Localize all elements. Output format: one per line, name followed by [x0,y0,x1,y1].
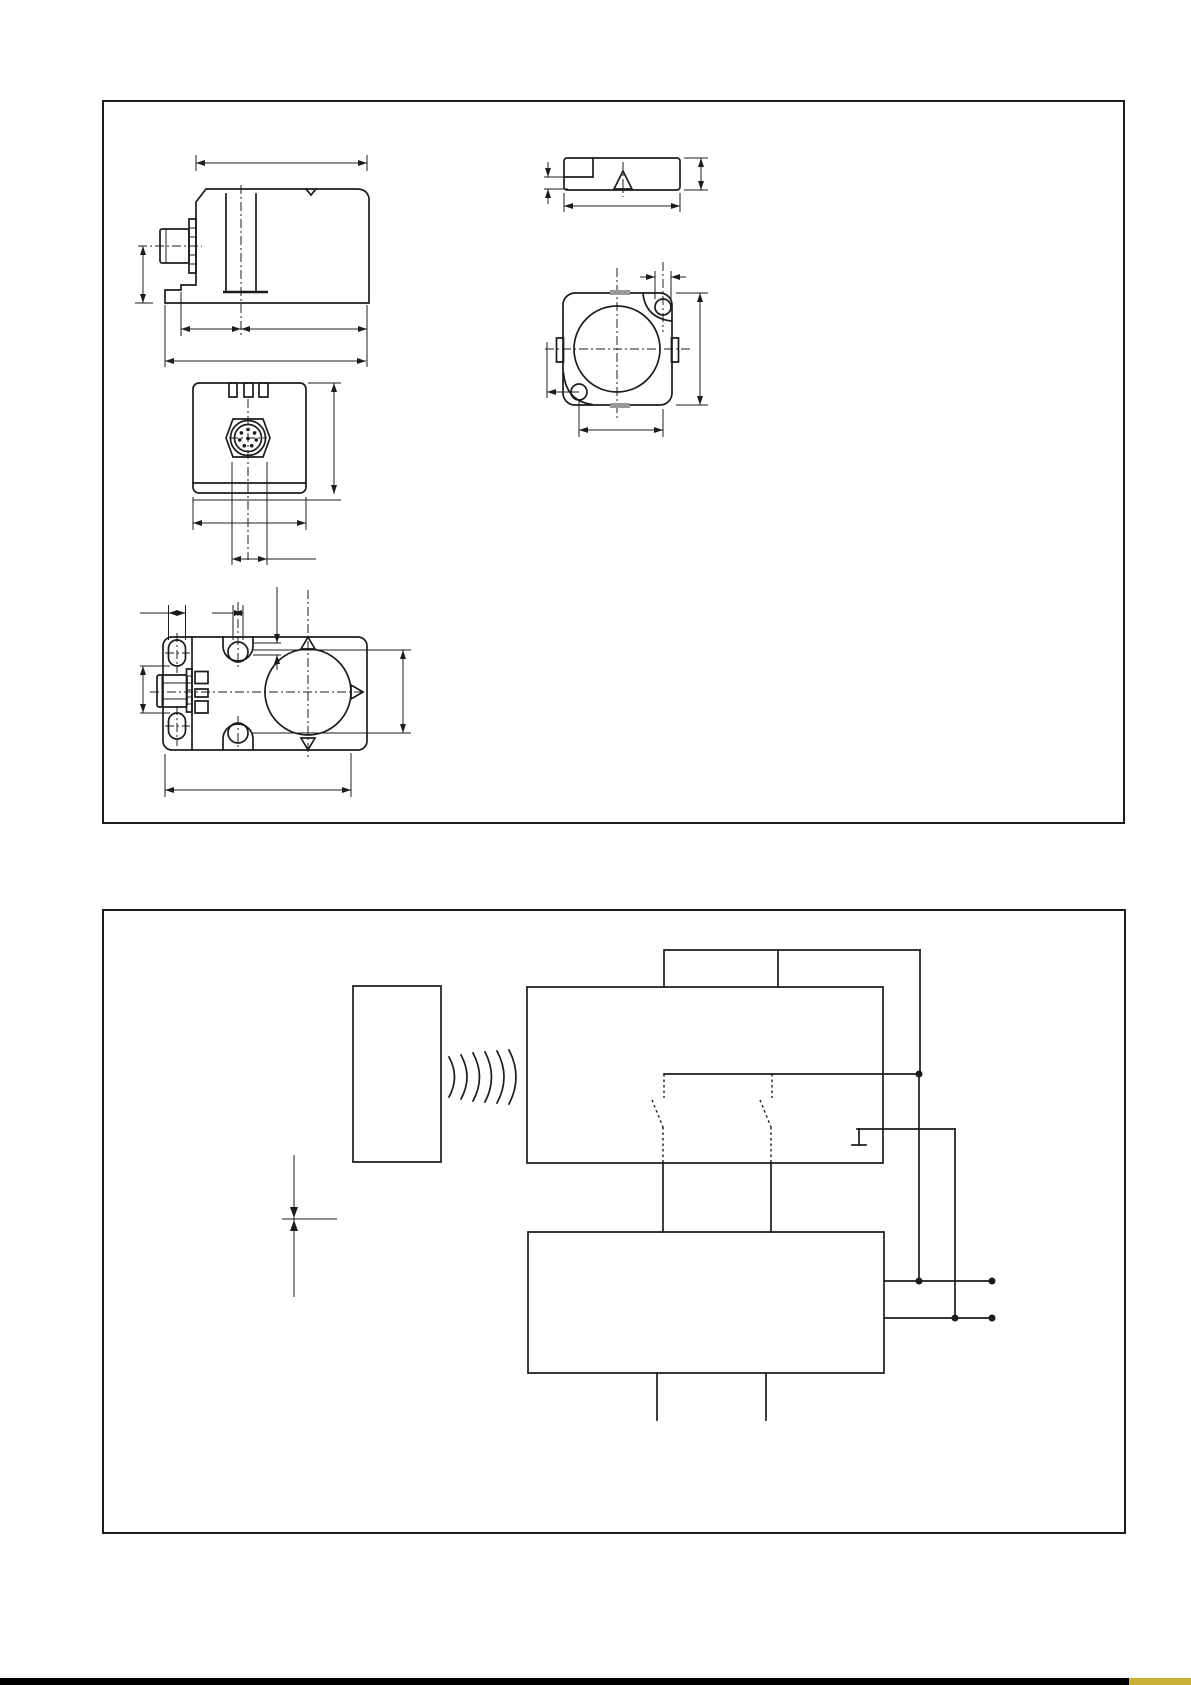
panel-border [103,910,1125,1533]
pin-tab-center [195,689,208,697]
wiring [657,950,992,1420]
page-footer-bar [0,1678,1191,1685]
top-tab-3 [259,383,268,397]
wireless-waves-icon [449,1050,516,1104]
pin-tab-lower [195,701,208,713]
connector-dimension [232,462,316,565]
height-dimension [684,158,708,190]
width-dimension [193,497,306,530]
pin-tab-upper [195,672,208,684]
receiver-box [527,987,883,1163]
junction-dot [916,1278,923,1285]
junction-dot [916,1071,923,1078]
slot-spacing-dimension [140,666,170,713]
footer-bar [0,1678,1129,1685]
switch-contact-2 [760,1074,772,1163]
width-dimension [196,155,367,171]
mold-mark-bottom [610,403,630,408]
sensor-side-view-drawing [544,158,708,212]
junction-dot [952,1315,959,1322]
overall-width-dimension [165,305,366,367]
top-notch-marker [306,189,316,195]
slot-width-dimension [140,605,186,640]
sensing-distance-dimension [282,1155,337,1297]
sensor-face-view-drawing [545,262,708,437]
side-view-drawing [135,155,369,367]
function-diagram-panel [103,910,1125,1533]
bracket-step [564,158,593,177]
length-dimension [564,193,680,212]
terminal-dot [989,1315,996,1322]
dimension-drawings-panel [103,101,1124,823]
terminal-block [664,950,920,987]
drawing-canvas [0,0,1191,1685]
hole-offset-dimension [253,587,281,670]
datasheet-page [0,0,1191,1685]
corner-lug-top-right [643,294,672,321]
ground-symbol [852,1129,866,1145]
transmitter-box [353,986,441,1162]
terminal-dot [989,1278,996,1285]
plug-barrel-lines [162,683,187,699]
output-stage-box [528,1232,884,1373]
top-tab-2 [244,383,253,397]
bottom-width-dimension [165,753,351,797]
mold-mark-top [610,290,630,295]
height-dimension [676,293,708,405]
switch-contact-1 [652,1074,664,1163]
top-tab-1 [229,383,237,397]
footer-accent [1129,1678,1191,1685]
top-view-drawing [140,587,411,797]
rear-view-drawing [193,383,341,565]
height-dimension [135,246,153,303]
